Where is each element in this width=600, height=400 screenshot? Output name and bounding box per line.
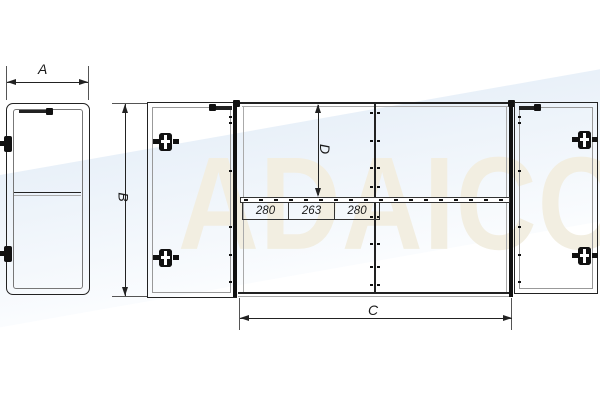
- main-bottom-inner-line: [238, 296, 512, 297]
- side-view-inner: [13, 109, 83, 289]
- dim-c-ext-left: [239, 298, 240, 330]
- dim-b-label: B: [117, 192, 131, 201]
- dim-d-arrow-top: [315, 104, 321, 113]
- dim-d-arrow-bottom: [315, 188, 321, 197]
- technical-drawing-canvas: ADAICO A B: [0, 0, 600, 400]
- hinge-icon: [153, 249, 179, 267]
- rail-dim-value: 263: [302, 205, 321, 217]
- dim-c-label: C: [368, 303, 378, 317]
- rail-dim-value: 280: [256, 205, 275, 217]
- latch-icon: [46, 108, 53, 115]
- dim-b-arrow-bottom: [122, 287, 128, 296]
- corner-bracket-icon: [233, 100, 240, 107]
- side-view-divider-2: [14, 195, 81, 196]
- hinge-icon: [0, 136, 12, 152]
- dim-a-line: [7, 82, 88, 83]
- hinge-icon: [0, 246, 12, 262]
- rail-dim-segment: 263: [288, 203, 335, 220]
- hinge-icon: [572, 247, 598, 265]
- main-bottom-edge: [238, 292, 512, 294]
- side-view-divider: [14, 192, 81, 193]
- rail-dim-segment: 280: [334, 203, 380, 220]
- dim-c-ext-right: [511, 298, 512, 330]
- latch-knob-icon: [534, 104, 541, 111]
- rail-dim-segment: 280: [242, 203, 289, 220]
- rail-holes: [244, 199, 506, 201]
- dim-a-ext-right: [88, 66, 89, 100]
- dim-a-arrow-right: [79, 79, 88, 85]
- dim-c-line: [240, 318, 512, 319]
- dim-b-ext-bottom: [112, 296, 148, 297]
- dim-a-label: A: [38, 62, 47, 76]
- dim-d-label: D: [318, 144, 332, 154]
- dim-c-arrow-right: [503, 315, 512, 321]
- hinge-icon: [153, 133, 179, 151]
- latch-knob-icon: [209, 104, 216, 111]
- left-door-edge-thick: [233, 102, 237, 297]
- dim-b-arrow-top: [122, 104, 128, 113]
- dim-a-arrow-left: [7, 79, 16, 85]
- latch-icon: [214, 106, 232, 110]
- dim-b-ext-top: [112, 103, 148, 104]
- dim-c-arrow-left: [240, 315, 249, 321]
- hinge-icon: [572, 131, 598, 149]
- rail-dim-value: 280: [347, 205, 366, 217]
